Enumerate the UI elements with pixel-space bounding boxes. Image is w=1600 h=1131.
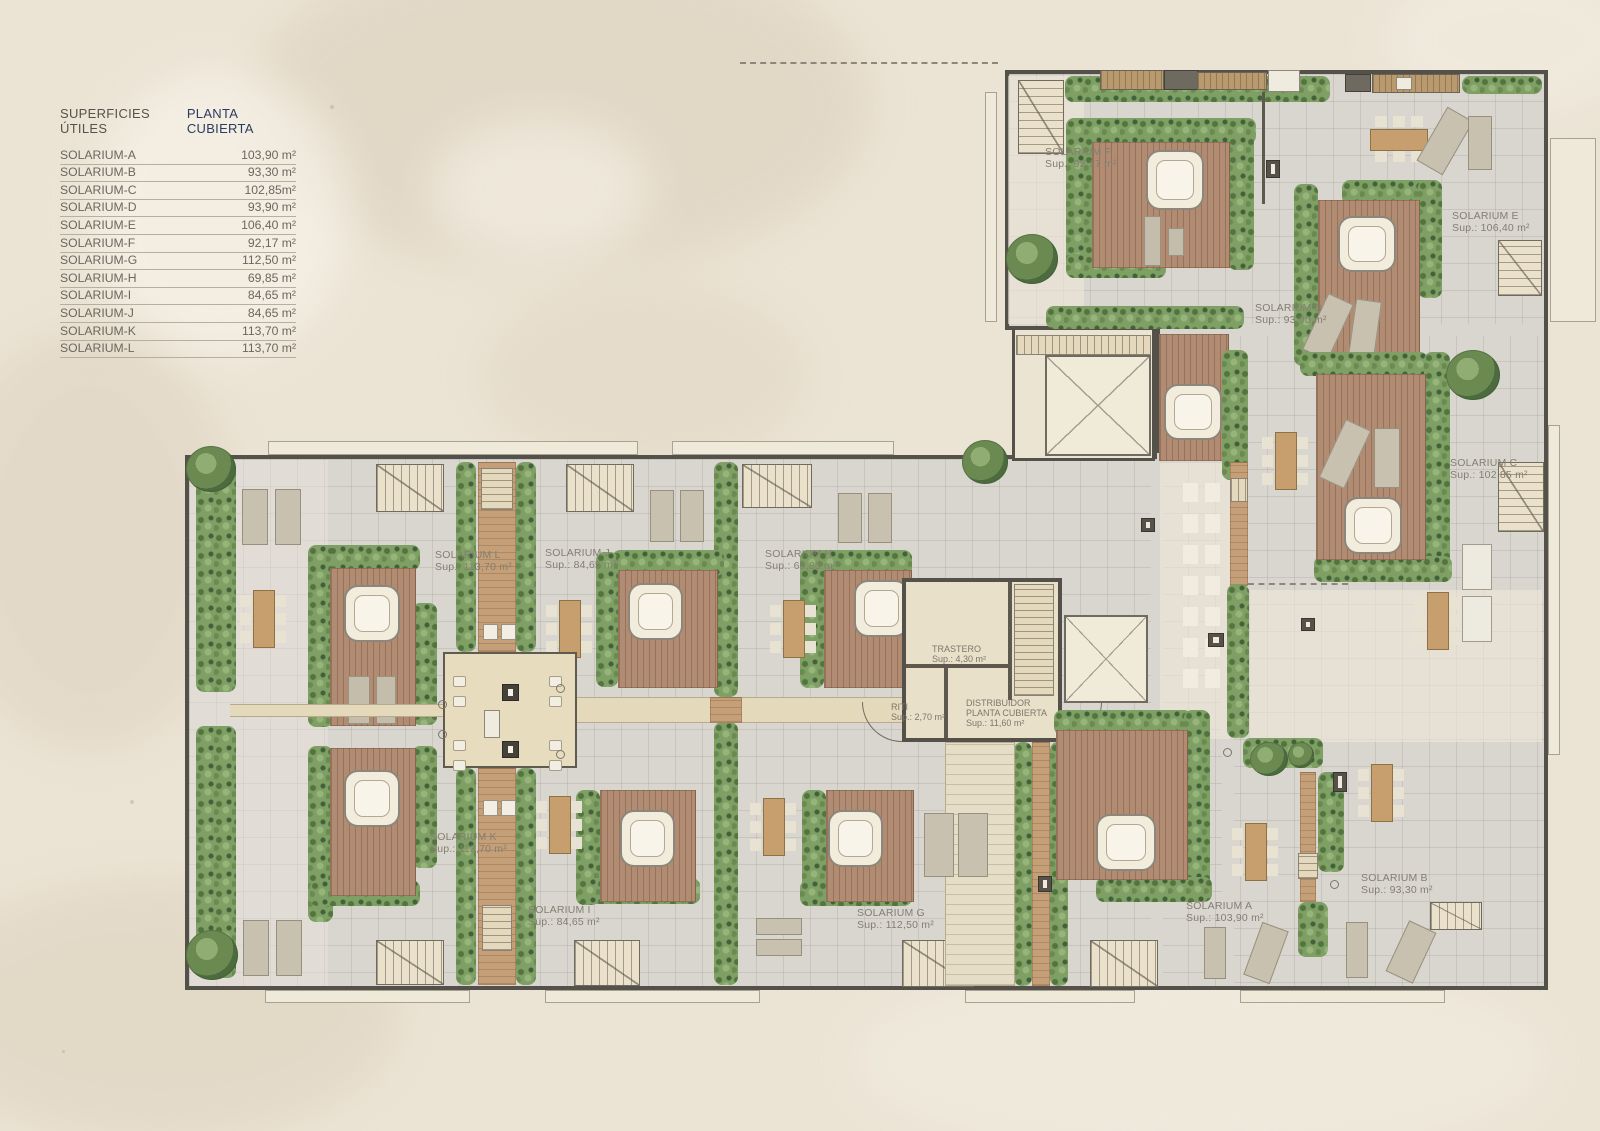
hedge xyxy=(1424,352,1450,564)
legend-row-name: SOLARIUM-I xyxy=(60,288,131,302)
sun-lounger xyxy=(1462,596,1492,642)
dining-table-set xyxy=(1262,432,1308,490)
legend-row-name: SOLARIUM-A xyxy=(60,148,136,162)
tree xyxy=(1006,234,1058,284)
legend-subtitle: PLANTA CUBIERTA xyxy=(187,106,296,136)
hedge xyxy=(1418,180,1442,298)
seat xyxy=(453,696,466,707)
wood-path xyxy=(710,697,742,723)
skylight xyxy=(1064,615,1148,703)
central-walkway xyxy=(577,697,907,723)
stair xyxy=(482,905,512,951)
stair xyxy=(481,468,513,510)
solarium-area: Sup.: 69,85 m² xyxy=(765,561,837,573)
room-name: TRASTERO xyxy=(932,644,986,654)
skylight-box xyxy=(1396,77,1412,90)
solarium-area: Sup.: 84,65 m² xyxy=(528,917,600,929)
deck-mat xyxy=(1168,228,1184,256)
legend-title: SUPERFICIES ÚTILES xyxy=(60,106,187,136)
stair xyxy=(1430,902,1482,930)
hedge xyxy=(1298,902,1328,957)
tree xyxy=(1446,350,1500,400)
solarium-area: Sup.: 93,30 m² xyxy=(1361,885,1433,897)
sun-lounger xyxy=(756,939,802,956)
sun-lounger xyxy=(243,920,269,976)
room-name: DISTRIBUIDOR xyxy=(966,698,1047,708)
solarium-name: SOLARIUM J xyxy=(545,548,617,560)
hedge xyxy=(1300,352,1428,376)
legend-row-value: 113,70 m² xyxy=(242,324,296,338)
solarium-area: Sup.: 102,85 m² xyxy=(1450,470,1528,482)
sun-lounger xyxy=(275,489,301,545)
paper-speck xyxy=(330,105,334,109)
legend-row: SOLARIUM-L113,70 m² xyxy=(60,341,296,359)
hedge xyxy=(516,462,536,652)
hedge xyxy=(596,552,618,687)
stair xyxy=(376,940,444,985)
sun-lounger xyxy=(242,489,268,545)
hedge xyxy=(1227,584,1249,738)
post-marker xyxy=(556,684,565,693)
seat xyxy=(453,760,466,771)
dashed-division-line xyxy=(1248,583,1348,585)
solarium-area: Sup.: 112,50 m² xyxy=(857,920,934,932)
drain xyxy=(1038,876,1052,892)
planter xyxy=(483,624,498,640)
ledge xyxy=(268,441,638,455)
roof-shaft xyxy=(1100,70,1164,90)
legend-row-name: SOLARIUM-G xyxy=(60,253,137,267)
watercolor-blob xyxy=(430,120,650,260)
jacuzzi xyxy=(620,810,675,867)
legend-row-value: 84,65 m² xyxy=(248,306,296,320)
legend-row-name: SOLARIUM-E xyxy=(60,218,136,232)
roof-shaft xyxy=(1345,74,1371,92)
ledge xyxy=(545,990,760,1003)
seat xyxy=(453,676,466,687)
solarium-a-label: SOLARIUM A Sup.: 103,90 m² xyxy=(1186,901,1264,924)
stool-rows xyxy=(1183,483,1198,502)
dining-table-set xyxy=(1232,823,1278,881)
legend-row-name: SOLARIUM-H xyxy=(60,271,137,285)
legend-row: SOLARIUM-J84,65 m² xyxy=(60,305,296,323)
hedge xyxy=(1096,877,1212,902)
solarium-c-label: SOLARIUM C Sup.: 102,85 m² xyxy=(1450,458,1528,481)
solarium-area: Sup.: 106,40 m² xyxy=(1452,223,1530,235)
solarium-f-label: SOLARIUM F Sup.: 92,17 m² xyxy=(1045,147,1117,170)
ledge xyxy=(672,441,894,455)
jacuzzi xyxy=(1096,814,1156,871)
solarium-name: SOLARIUM K xyxy=(430,832,507,844)
distribuidor-label: DISTRIBUIDOR PLANTA CUBIERTA Sup.: 11,60… xyxy=(966,698,1047,728)
floor-tint xyxy=(1250,590,1542,742)
drain xyxy=(1301,618,1315,631)
legend-row-name: SOLARIUM-K xyxy=(60,324,136,338)
legend-row: SOLARIUM-H69,85 m² xyxy=(60,270,296,288)
legend-row-value: 92,17 m² xyxy=(248,236,296,250)
sun-lounger xyxy=(1346,922,1368,978)
roof-shaft xyxy=(1372,74,1460,93)
solarium-l-label: SOLARIUM L Sup.: 113,70 m² xyxy=(435,550,512,573)
solarium-name: SOLARIUM A xyxy=(1186,901,1264,913)
skylight-box xyxy=(1268,70,1300,92)
post-marker xyxy=(1223,748,1232,757)
stair xyxy=(1498,240,1542,296)
hedge xyxy=(1222,350,1248,480)
legend-row-name: SOLARIUM-F xyxy=(60,236,135,250)
hedge xyxy=(516,768,536,985)
legend-row-name: SOLARIUM-J xyxy=(60,306,134,320)
legend-row-value: 103,90 m² xyxy=(241,148,296,162)
riti-label: RITI Sup.: 2,70 m² xyxy=(891,702,945,722)
legend-row-value: 102,85m² xyxy=(245,183,297,197)
room-area: Sup.: 4,30 m² xyxy=(932,654,986,664)
skylight xyxy=(1045,355,1151,456)
seat xyxy=(549,760,562,771)
solarium-name: SOLARIUM I xyxy=(528,905,600,917)
hedge xyxy=(714,722,738,985)
sun-lounger xyxy=(958,813,988,877)
solarium-area: Sup.: 113,70 m² xyxy=(435,562,512,574)
dining-table-set xyxy=(240,590,286,648)
solarium-g-label: SOLARIUM G Sup.: 112,50 m² xyxy=(857,908,934,931)
legend-row-name: SOLARIUM-C xyxy=(60,183,137,197)
sun-lounger xyxy=(276,920,302,976)
jacuzzi xyxy=(1146,150,1204,210)
legend-row-value: 93,30 m² xyxy=(248,165,296,179)
room-area: Sup.: 2,70 m² xyxy=(891,712,945,722)
ledge xyxy=(1550,138,1596,322)
walkway xyxy=(230,704,444,717)
solarium-d-label: SOLARIUM D Sup.: 93,90 m² xyxy=(1255,303,1327,326)
stair xyxy=(1090,940,1158,987)
solarium-name: SOLARIUM E xyxy=(1452,211,1530,223)
stair xyxy=(1298,853,1318,879)
solarium-name: SOLARIUM B xyxy=(1361,873,1433,885)
tree xyxy=(186,930,238,980)
room-name: RITI xyxy=(891,702,945,712)
fire-pit xyxy=(502,684,519,701)
solarium-i-label: SOLARIUM I Sup.: 84,65 m² xyxy=(528,905,600,928)
room-area: Sup.: 11,60 m² xyxy=(966,718,1047,728)
jacuzzi xyxy=(1164,384,1222,440)
hedge xyxy=(1066,118,1092,270)
tree xyxy=(1250,742,1288,776)
drain xyxy=(1266,160,1280,178)
ledge xyxy=(1548,425,1560,755)
ledge xyxy=(265,990,470,1003)
interior-wall xyxy=(1008,582,1012,700)
sun-lounger xyxy=(868,493,892,543)
legend-row: SOLARIUM-C102,85m² xyxy=(60,182,296,200)
dining-table-set xyxy=(1414,592,1460,650)
post-marker xyxy=(1330,880,1339,889)
hedge xyxy=(456,768,476,985)
solarium-b-label: SOLARIUM B Sup.: 93,30 m² xyxy=(1361,873,1433,896)
solarium-e-label: SOLARIUM E Sup.: 106,40 m² xyxy=(1452,211,1530,234)
solarium-area: Sup.: 92,17 m² xyxy=(1045,159,1117,171)
dining-table-set xyxy=(1358,764,1404,822)
roof-shaft xyxy=(1164,70,1198,90)
deck-mat xyxy=(1144,216,1161,266)
legend-row: SOLARIUM-E106,40 m² xyxy=(60,217,296,235)
jacuzzi xyxy=(828,810,883,867)
fire-pit xyxy=(502,741,519,758)
legend-row-value: 69,85 m² xyxy=(248,271,296,285)
ledge xyxy=(1240,990,1445,1003)
solarium-name: SOLARIUM D xyxy=(1255,303,1327,315)
stair xyxy=(1018,80,1064,154)
hedge xyxy=(1014,742,1032,986)
interior-wall xyxy=(1262,92,1265,204)
post-marker xyxy=(556,750,565,759)
jacuzzi xyxy=(628,583,683,640)
tree xyxy=(1288,742,1314,768)
floor-plan-canvas: SOLARIUM F Sup.: 92,17 m² SOLARIUM E Sup… xyxy=(0,0,1600,1131)
seat xyxy=(549,696,562,707)
room-name-2: PLANTA CUBIERTA xyxy=(966,708,1047,718)
legend-row-value: 113,70 m² xyxy=(242,341,296,355)
dining-table-set xyxy=(546,600,592,658)
legend-row-value: 84,65 m² xyxy=(248,288,296,302)
solarium-name: SOLARIUM L xyxy=(435,550,512,562)
drain xyxy=(1208,633,1224,647)
sun-lounger xyxy=(924,813,954,877)
stair xyxy=(376,464,444,512)
stair xyxy=(1014,584,1054,696)
drain xyxy=(1333,772,1347,792)
stair xyxy=(1016,335,1151,355)
roof-shaft xyxy=(1197,72,1267,90)
legend-row-value: 106,40 m² xyxy=(241,218,296,232)
wood-path xyxy=(1300,772,1316,902)
stair xyxy=(574,940,640,986)
sun-lounger xyxy=(1204,927,1226,979)
sun-lounger xyxy=(1374,428,1400,488)
ledge xyxy=(965,990,1135,1003)
legend-row: SOLARIUM-D93,90 m² xyxy=(60,200,296,218)
solarium-name: SOLARIUM G xyxy=(857,908,934,920)
dashed-boundary-line xyxy=(740,62,998,64)
solarium-k-label: SOLARIUM K Sup.: 113,70 m² xyxy=(430,832,507,855)
interior-wall xyxy=(906,664,1010,668)
dining-table-set xyxy=(770,600,816,658)
planter xyxy=(483,800,498,816)
solarium-area: Sup.: 103,90 m² xyxy=(1186,913,1264,925)
paper-speck xyxy=(130,800,134,804)
stair xyxy=(1230,478,1248,502)
legend-row-value: 93,90 m² xyxy=(248,200,296,214)
dining-table-set xyxy=(750,798,796,856)
legend-row: SOLARIUM-B93,30 m² xyxy=(60,165,296,183)
solarium-h-label: SOLARIUM H Sup.: 69,85 m² xyxy=(765,549,837,572)
sun-lounger xyxy=(756,918,802,935)
hedge xyxy=(1462,76,1542,94)
legend-row-name: SOLARIUM-L xyxy=(60,341,135,355)
legend-row: SOLARIUM-F92,17 m² xyxy=(60,235,296,253)
hedge xyxy=(1228,118,1254,270)
trastero-label: TRASTERO Sup.: 4,30 m² xyxy=(932,644,986,664)
low-table xyxy=(484,710,500,738)
jacuzzi xyxy=(1338,216,1396,272)
sun-lounger xyxy=(1462,544,1492,590)
legend-row: SOLARIUM-K113,70 m² xyxy=(60,323,296,341)
solarium-j-label: SOLARIUM J Sup.: 84,65 m² xyxy=(545,548,617,571)
tree xyxy=(962,440,1008,484)
drain xyxy=(1141,518,1155,532)
legend-row: SOLARIUM-A103,90 m² xyxy=(60,147,296,165)
tree xyxy=(186,446,236,492)
legend-row-value: 112,50 m² xyxy=(242,253,296,267)
post-marker xyxy=(438,730,447,739)
solarium-area: Sup.: 84,65 m² xyxy=(545,560,617,572)
sun-lounger xyxy=(838,493,862,543)
legend-row: SOLARIUM-G112,50 m² xyxy=(60,253,296,271)
legend-panel: SUPERFICIES ÚTILES PLANTA CUBIERTA SOLAR… xyxy=(60,106,296,358)
sun-lounger xyxy=(680,490,704,542)
ledge xyxy=(985,92,997,322)
legend-row: SOLARIUM-I84,65 m² xyxy=(60,288,296,306)
planter xyxy=(501,800,516,816)
paper-speck xyxy=(62,1050,65,1053)
solarium-name: SOLARIUM H xyxy=(765,549,837,561)
sun-lounger xyxy=(650,490,674,542)
jacuzzi xyxy=(344,585,400,642)
stair xyxy=(742,464,812,508)
jacuzzi xyxy=(344,770,400,827)
solarium-area: Sup.: 113,70 m² xyxy=(430,844,507,856)
jacuzzi xyxy=(1344,497,1402,554)
legend-row-name: SOLARIUM-B xyxy=(60,165,136,179)
planter xyxy=(501,624,516,640)
legend-row-name: SOLARIUM-D xyxy=(60,200,137,214)
stair xyxy=(566,464,634,512)
dining-table-set xyxy=(536,796,582,854)
solarium-area: Sup.: 93,90 m² xyxy=(1255,315,1327,327)
hedge xyxy=(196,460,236,692)
solarium-name: SOLARIUM C xyxy=(1450,458,1528,470)
post-marker xyxy=(438,700,447,709)
jacuzzi xyxy=(854,580,909,637)
seat xyxy=(453,740,466,751)
solarium-name: SOLARIUM F xyxy=(1045,147,1117,159)
hedge xyxy=(1046,306,1244,329)
floor-tint xyxy=(1160,463,1230,739)
sun-lounger xyxy=(1468,116,1492,170)
wood-path xyxy=(1032,742,1050,986)
